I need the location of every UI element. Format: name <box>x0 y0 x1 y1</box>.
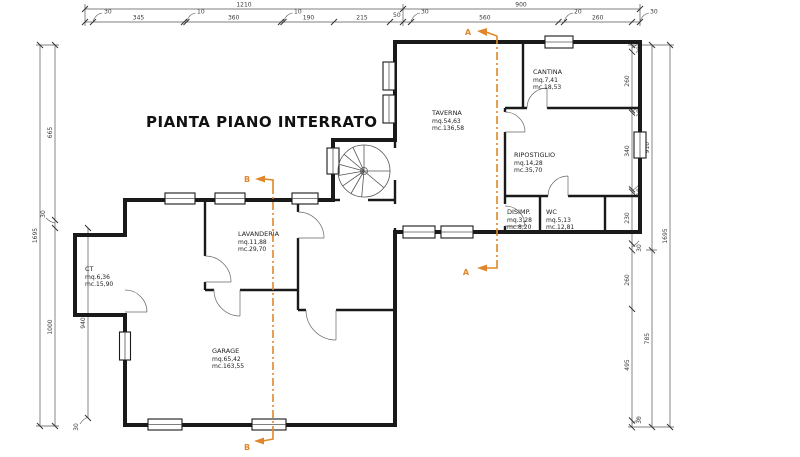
dim-seg: 260 <box>624 75 631 87</box>
dim-seg: 560 <box>479 15 491 22</box>
section-lines: A A B B <box>244 28 497 452</box>
section-line-b: B B <box>244 175 273 452</box>
room-name: WC <box>546 208 557 216</box>
floorplan-canvas: 1210 900 30 345 10 360 10 190 215 50 30 … <box>0 0 800 457</box>
room-mq: mq.5,13 <box>546 217 571 224</box>
witness-lines <box>36 4 674 427</box>
dim-seg: 345 <box>133 15 145 22</box>
room-mq: mq.11,88 <box>238 239 267 246</box>
room-name: CANTINA <box>533 68 563 76</box>
dim-seg: 360 <box>228 15 240 22</box>
dim-seg: 30 <box>421 9 429 16</box>
section-label-b-bottom: B <box>244 443 250 452</box>
room-mc: mc.8,20 <box>507 224 532 231</box>
room-mc: mc.15,90 <box>85 281 113 288</box>
room-label-disimp: DISIMP. mq.3,28 mc.8,20 <box>507 208 532 231</box>
building: TAVERNA mq.54,63 mc.136,58 CANTINA mq.7,… <box>75 36 646 430</box>
room-label-cantina: CANTINA mq.7,41 mc.18,53 <box>533 68 563 91</box>
dimension-chains: 1210 900 30 345 10 360 10 190 215 50 30 … <box>32 2 674 431</box>
room-mc: mc.12,81 <box>546 224 574 231</box>
dim-seg: 30 <box>104 9 112 16</box>
interior-walls <box>205 42 640 310</box>
page-title: PIANTA PIANO INTERRATO <box>146 113 378 131</box>
dim-top-left-total: 1210 <box>236 2 251 9</box>
dim-seg: 30 <box>40 210 47 218</box>
room-label-ct: CT mq.6,36 mc.15,90 <box>85 265 113 288</box>
section-line-a: A A <box>463 28 497 277</box>
room-mq: mq.6,36 <box>85 274 110 281</box>
room-name: DISIMP. <box>507 208 531 216</box>
room-mc: mc.18,53 <box>533 84 561 91</box>
room-mc: mc.29,70 <box>238 246 266 253</box>
room-label-wc: WC mq.5,13 mc.12,81 <box>546 208 574 231</box>
dim-right-outer: 1695 <box>662 228 669 243</box>
dim-seg: 340 <box>624 145 631 157</box>
exterior-walls <box>75 42 640 425</box>
room-mq: mq.14,28 <box>514 160 543 167</box>
spiral-staircase <box>338 145 390 197</box>
dim-seg: 260 <box>592 15 604 22</box>
dim-seg: 30 <box>636 416 643 424</box>
room-mq: mq.65,42 <box>212 356 241 363</box>
dim-seg: 20 <box>574 9 582 16</box>
room-mq: mq.3,28 <box>507 217 532 224</box>
dim-seg: 30 <box>636 244 643 252</box>
dim-seg: 215 <box>356 15 368 22</box>
dim-lines <box>40 9 670 427</box>
room-mc: mc.35,70 <box>514 167 542 174</box>
room-label-garage: GARAGE mq.65,42 mc.163,55 <box>212 347 244 370</box>
section-label-a-top: A <box>465 28 472 37</box>
dim-seg: 50 <box>393 12 401 19</box>
room-name: GARAGE <box>212 347 239 355</box>
dim-seg: 30 <box>73 423 80 431</box>
room-name: CT <box>85 265 94 273</box>
dim-left-inner: 940 <box>80 317 87 329</box>
dim-seg: 30 <box>650 9 658 16</box>
room-label-taverna: TAVERNA mq.54,63 mc.136,58 <box>431 109 464 132</box>
section-arrow-a-top <box>477 28 487 36</box>
dim-seg: 10 <box>197 9 205 16</box>
room-label-ripostiglio: RIPOSTIGLIO mq.14,28 mc.35,70 <box>514 151 555 174</box>
dim-top-right-total: 900 <box>515 2 527 9</box>
dim-seg: 1000 <box>47 319 54 334</box>
room-mq: mq.54,63 <box>432 118 461 125</box>
dim-seg: 230 <box>624 212 631 224</box>
dim-left-outer: 1695 <box>32 228 39 243</box>
section-arrow-b-top <box>255 176 265 183</box>
section-label-b-top: B <box>244 175 250 184</box>
dim-seg: 665 <box>47 127 54 139</box>
room-mq: mq.7,41 <box>533 77 558 84</box>
dim-seg: 190 <box>303 15 315 22</box>
dim-seg: 10 <box>294 9 302 16</box>
room-mc: mc.136,58 <box>432 125 464 132</box>
dim-seg: 260 <box>624 274 631 286</box>
room-name: RIPOSTIGLIO <box>514 151 555 159</box>
room-mc: mc.163,55 <box>212 363 244 370</box>
room-name: TAVERNA <box>431 109 462 117</box>
section-label-a-bottom: A <box>463 268 470 277</box>
dim-seg: 495 <box>624 359 631 371</box>
section-arrow-a-bottom <box>477 265 487 272</box>
section-arrow-b-bottom <box>254 438 264 445</box>
dim-right-mid: 785 <box>644 333 651 345</box>
